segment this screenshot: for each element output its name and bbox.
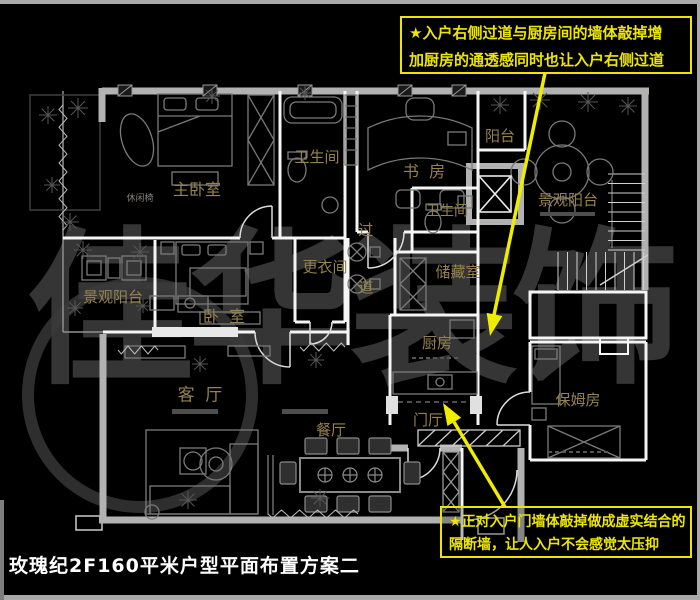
room-label-view-balcony-left: 景观阳台 <box>83 289 143 306</box>
room-label-dressing-room: 更衣间 <box>302 259 347 276</box>
room-label-balcony-top: 阳台 <box>485 128 515 145</box>
room-label-master-bedroom: 主卧室 <box>173 181 221 199</box>
watermark-text: 佳华装饰 <box>26 212 674 408</box>
frame-bottom <box>0 595 700 600</box>
room-label-dining-room: 餐厅 <box>316 422 346 439</box>
master-bedroom-furniture <box>114 94 274 185</box>
callout-arrow-bottom <box>443 403 505 507</box>
room-label-bedroom: 卧 室 <box>203 308 245 326</box>
room-label-leisure-chair: 休闲椅 <box>126 195 153 205</box>
note-top-line1: ★入户右侧过道与厨房间的墙体敲掉增 <box>409 20 683 47</box>
tv-feature-wall <box>152 327 238 337</box>
room-label-bathroom-top: 卫生间 <box>294 149 339 166</box>
room-label-nanny-room: 保姆房 <box>555 392 600 409</box>
room-label-storage-room: 储藏室 <box>435 264 480 281</box>
frame-top <box>0 0 700 4</box>
note-bottom: ★正对入户门墙体敲掉做成虚实结合的 隔断墙，让人入户不会感觉太压抑 <box>440 506 692 558</box>
elevator-cross-icon <box>479 176 511 212</box>
floor-plan-screenshot: 佳华装饰 <box>0 0 700 600</box>
study-furniture <box>368 98 472 208</box>
room-label-bathroom-mid: 卫生间 <box>426 204 468 219</box>
entry-hall-furniture <box>443 452 459 512</box>
room-label-view-balcony-right: 景观阳台 <box>538 192 598 209</box>
room-label-entry-hall: 门厅 <box>413 412 443 429</box>
note-top-line2: 加厨房的通透感同时也让入户右侧过道 <box>409 47 683 74</box>
room-label-corridor: 过道 <box>357 222 374 336</box>
room-label-study: 书 房 <box>403 163 445 181</box>
note-top: ★入户右侧过道与厨房间的墙体敲掉增 加厨房的通透感同时也让入户右侧过道 <box>400 16 692 74</box>
room-label-kitchen: 厨房 <box>422 335 452 352</box>
note-bottom-line1: ★正对入户门墙体敲掉做成虚实结合的 <box>449 511 683 534</box>
note-bottom-line2: 隔断墙，让人入户不会感觉太压抑 <box>449 534 683 557</box>
leisure-chair-shape <box>114 110 159 171</box>
plan-title: 玫瑰纪2F160平米户型平面布置方案二 <box>9 551 360 578</box>
room-label-living-room: 客 厅 <box>178 387 223 406</box>
frame-left <box>0 500 4 600</box>
